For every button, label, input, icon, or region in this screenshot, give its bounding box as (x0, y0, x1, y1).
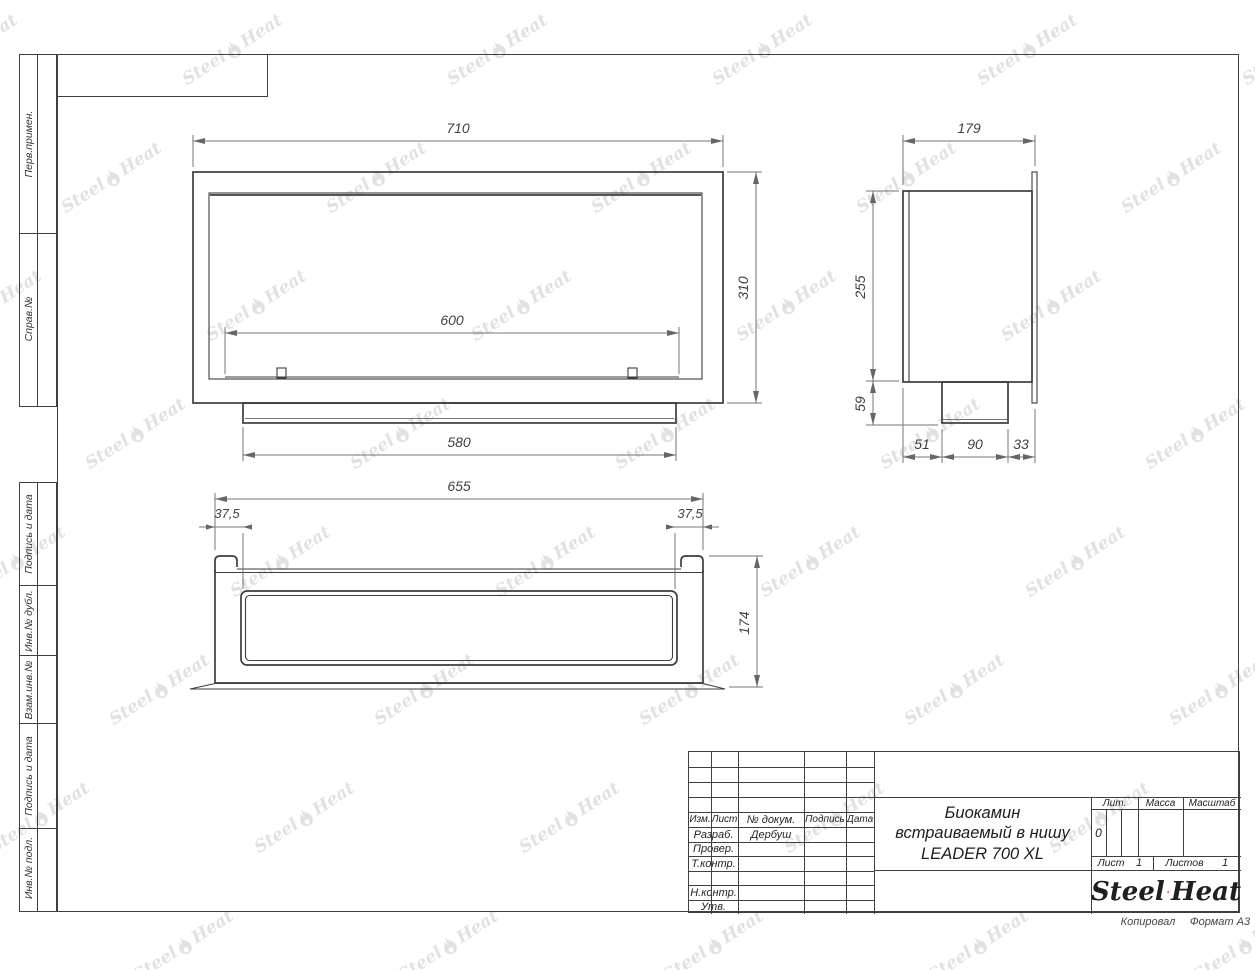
tb-line (689, 885, 874, 886)
top-left-stamp (57, 54, 268, 97)
strip-cell-podpis-data-2: Подпись и дата (20, 724, 56, 829)
strip-label: Подпись и дата (23, 494, 35, 573)
strip-label: Перв.примен. (23, 111, 35, 178)
strip-label: Инв.№ подл. (23, 837, 35, 899)
tb-lit-label: Лит. (1091, 797, 1138, 809)
tb-row-prover-label: Провер. (689, 842, 738, 856)
watermark: SteelHeat (0, 10, 21, 89)
strip-cell-podpis-data-1: Подпись и дата (20, 483, 56, 586)
tb-row-nkontr-label: Н.контр. (689, 885, 738, 900)
format-label: Формат A3 (1185, 916, 1255, 928)
strip-cell-perv-primen: Перв.примен. (20, 55, 56, 234)
tb-header-izm: Изм. (689, 812, 711, 827)
tb-row-utv-label: Утв. (689, 900, 738, 914)
tb-line (874, 870, 1241, 871)
strip-label: Инв.№ дубл. (23, 590, 35, 652)
watermark: SteelHeat (395, 906, 502, 970)
tb-line (1121, 809, 1122, 856)
tb-list-label: Лист (1091, 856, 1131, 870)
tb-row-razrab-label: Разраб. (689, 827, 738, 842)
strip-label: Взам.инв.№ (23, 660, 35, 719)
tb-line (689, 797, 874, 798)
drawing-sheet: SteelHeatSteelHeatSteelHeatSteelHeatStee… (0, 0, 1255, 970)
tb-line (738, 752, 739, 914)
tb-line (1091, 809, 1241, 810)
tb-massa-label: Масса (1138, 797, 1183, 809)
tb-masshtab-label: Масштаб (1183, 797, 1241, 809)
strip-cell-vzam-inv: Взам.инв.№ (20, 656, 56, 724)
tb-line (689, 900, 874, 901)
copied-label: Копировал (1108, 916, 1188, 928)
watermark: SteelHeat (1239, 10, 1255, 89)
left-strip-group-a: Перв.примен. Справ.№ (19, 54, 57, 407)
tb-line (1138, 797, 1139, 856)
tb-line (711, 752, 712, 914)
tb-line (846, 752, 847, 914)
tb-line (689, 767, 874, 768)
watermark: SteelHeat (660, 906, 767, 970)
tb-line (689, 856, 874, 857)
strip-cell-sprav-no: Справ.№ (20, 234, 56, 404)
logo-heat-text: Heat (1171, 877, 1241, 907)
tb-header-date: Дата (846, 812, 874, 827)
tb-line (689, 842, 874, 843)
tb-list-value: 1 (1129, 856, 1149, 870)
tb-header-doc: № докум. (738, 812, 804, 827)
tb-row-tkontr-label: Т.контр. (689, 856, 738, 871)
flame-icon (1167, 877, 1169, 907)
tb-listov-label: Листов (1157, 856, 1212, 870)
tb-line (804, 752, 805, 914)
left-strip-group-b: Подпись и дата Инв.№ дубл. Взам.инв.№ По… (19, 482, 57, 912)
document-title: Биокамин встраиваемый в нишу LEADER 700 … (874, 797, 1091, 870)
title-line-1: Биокамин (945, 803, 1021, 824)
tb-line (689, 827, 874, 828)
strip-cell-inv-dubl: Инв.№ дубл. (20, 586, 56, 656)
tb-line (1091, 856, 1241, 857)
tb-line (1106, 809, 1107, 856)
tb-line (874, 752, 875, 914)
tb-row-razrab-value: Дербуш (738, 827, 804, 842)
logo-steel-text: Steel (1091, 877, 1165, 907)
title-line-3: LEADER 700 XL (921, 844, 1044, 865)
steelheat-logo: Steel Heat (1091, 870, 1241, 914)
tb-line (874, 797, 1241, 798)
tb-lit-value: 0 (1091, 809, 1106, 856)
tb-header-sign: Подпись (804, 812, 846, 827)
tb-line (689, 782, 874, 783)
tb-header-list: Лист (711, 812, 738, 827)
tb-line (689, 812, 874, 813)
tb-listov-value: 1 (1214, 856, 1236, 870)
title-line-2: встраиваемый в нишу (895, 823, 1070, 844)
tb-line (689, 871, 874, 872)
title-block: Изм. Лист № докум. Подпись Дата Разраб. … (688, 751, 1240, 913)
watermark: SteelHeat (925, 906, 1032, 970)
strip-label: Подпись и дата (23, 736, 35, 815)
tb-line (1153, 856, 1154, 870)
strip-label: Справ.№ (23, 297, 35, 342)
strip-cell-inv-podl: Инв.№ подл. (20, 829, 56, 907)
watermark: SteelHeat (130, 906, 237, 970)
tb-line (1183, 797, 1184, 856)
